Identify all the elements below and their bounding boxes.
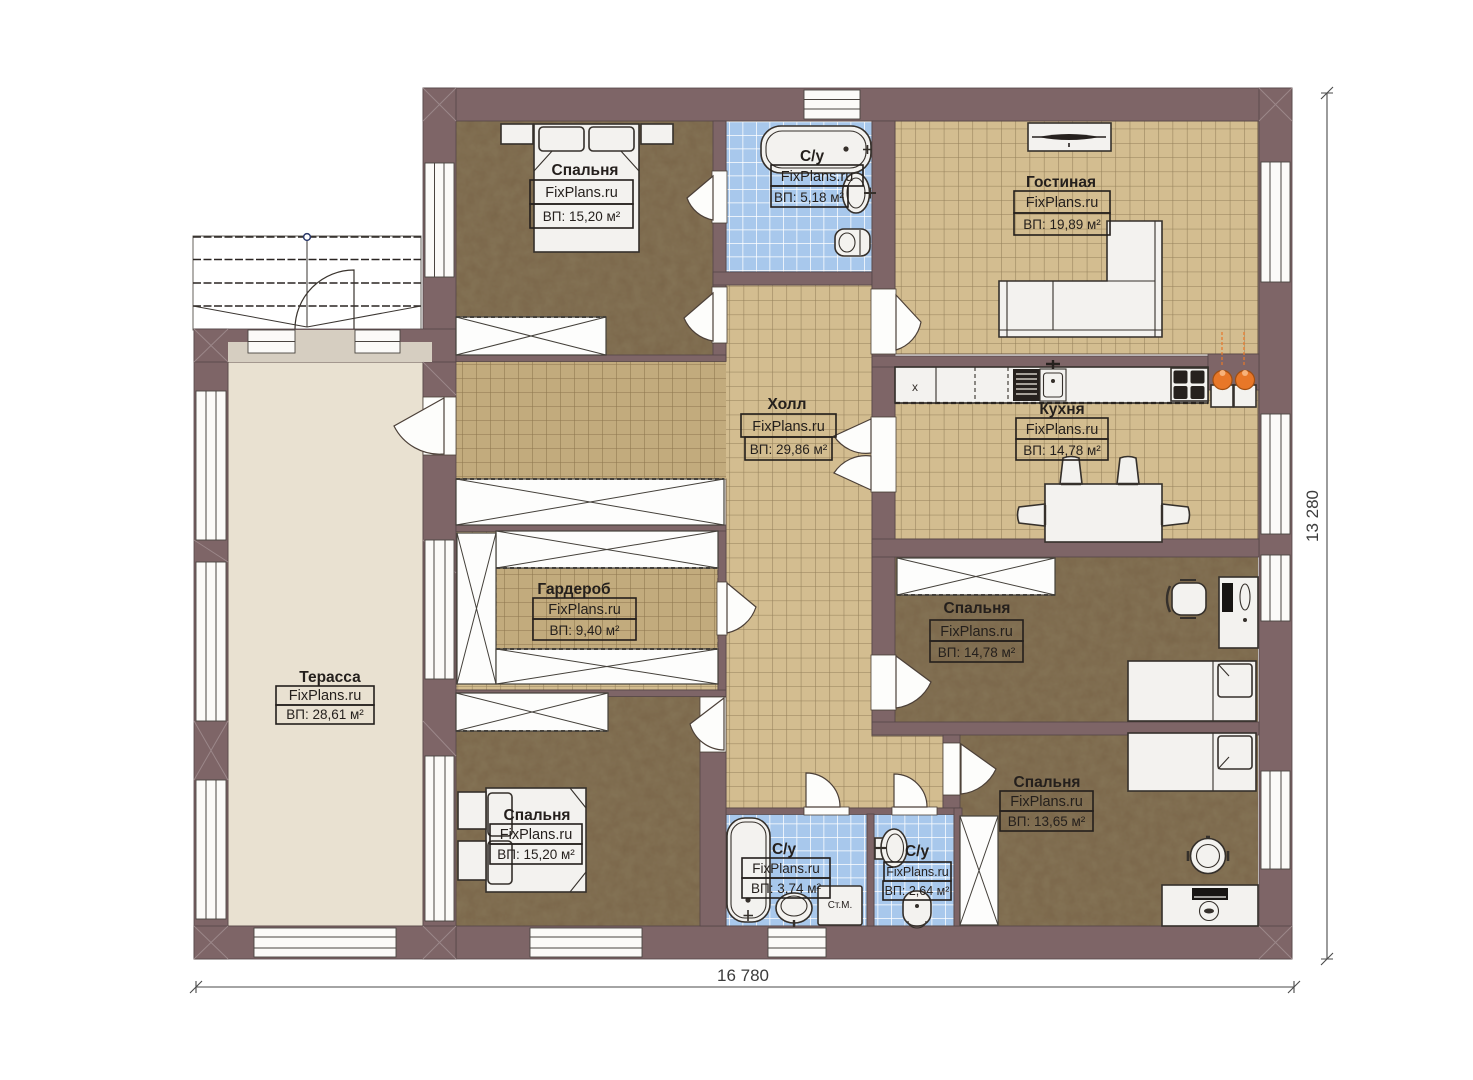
svg-text:FixPlans.ru: FixPlans.ru bbox=[781, 169, 854, 185]
svg-text:FixPlans.ru: FixPlans.ru bbox=[1026, 422, 1099, 438]
svg-text:FixPlans.ru: FixPlans.ru bbox=[886, 865, 949, 879]
svg-text:FixPlans.ru: FixPlans.ru bbox=[545, 185, 618, 201]
svg-text:Спальня: Спальня bbox=[552, 162, 619, 179]
svg-text:Кухня: Кухня bbox=[1039, 401, 1084, 418]
svg-text:FixPlans.ru: FixPlans.ru bbox=[500, 827, 573, 843]
svg-text:ВП: 3,74 м²: ВП: 3,74 м² bbox=[751, 881, 822, 896]
svg-text:ВП: 2,64 м²: ВП: 2,64 м² bbox=[885, 884, 950, 898]
svg-text:С/у: С/у bbox=[800, 148, 825, 165]
svg-text:FixPlans.ru: FixPlans.ru bbox=[289, 688, 362, 704]
svg-text:FixPlans.ru: FixPlans.ru bbox=[940, 624, 1013, 640]
svg-text:Спальня: Спальня bbox=[1014, 774, 1081, 791]
svg-text:Ст.М.: Ст.М. bbox=[828, 900, 853, 911]
svg-text:ВП: 28,61 м²: ВП: 28,61 м² bbox=[286, 707, 364, 722]
svg-text:Спальня: Спальня bbox=[944, 600, 1011, 617]
svg-text:ВП: 15,20 м²: ВП: 15,20 м² bbox=[543, 209, 621, 224]
svg-text:13 280: 13 280 bbox=[1303, 490, 1322, 542]
svg-text:ВП: 14,78 м²: ВП: 14,78 м² bbox=[1023, 443, 1101, 458]
svg-text:FixPlans.ru: FixPlans.ru bbox=[752, 419, 825, 435]
svg-text:Терасса: Терасса bbox=[299, 669, 361, 686]
svg-text:ВП: 15,20 м²: ВП: 15,20 м² bbox=[497, 847, 575, 862]
svg-text:x: x bbox=[912, 380, 918, 394]
svg-text:Холл: Холл bbox=[768, 396, 807, 413]
svg-text:FixPlans.ru: FixPlans.ru bbox=[1010, 794, 1083, 810]
svg-text:ВП: 29,86 м²: ВП: 29,86 м² bbox=[750, 442, 828, 457]
svg-text:ВП: 9,40 м²: ВП: 9,40 м² bbox=[549, 623, 620, 638]
svg-text:ВП: 5,18 м²: ВП: 5,18 м² bbox=[774, 190, 845, 205]
svg-text:Спальня: Спальня bbox=[504, 807, 571, 824]
svg-text:FixPlans.ru: FixPlans.ru bbox=[752, 861, 820, 876]
svg-text:FixPlans.ru: FixPlans.ru bbox=[1026, 195, 1099, 211]
svg-text:ВП: 19,89 м²: ВП: 19,89 м² bbox=[1023, 217, 1101, 232]
svg-text:Гардероб: Гардероб bbox=[537, 581, 610, 598]
svg-text:ВП: 13,65 м²: ВП: 13,65 м² bbox=[1008, 814, 1086, 829]
svg-text:16 780: 16 780 bbox=[717, 966, 769, 985]
svg-text:С/у: С/у bbox=[772, 841, 797, 858]
svg-text:FixPlans.ru: FixPlans.ru bbox=[548, 602, 621, 618]
svg-text:Гостиная: Гостиная bbox=[1026, 174, 1096, 191]
svg-text:ВП: 14,78 м²: ВП: 14,78 м² bbox=[938, 645, 1016, 660]
svg-text:С/у: С/у bbox=[905, 843, 930, 860]
